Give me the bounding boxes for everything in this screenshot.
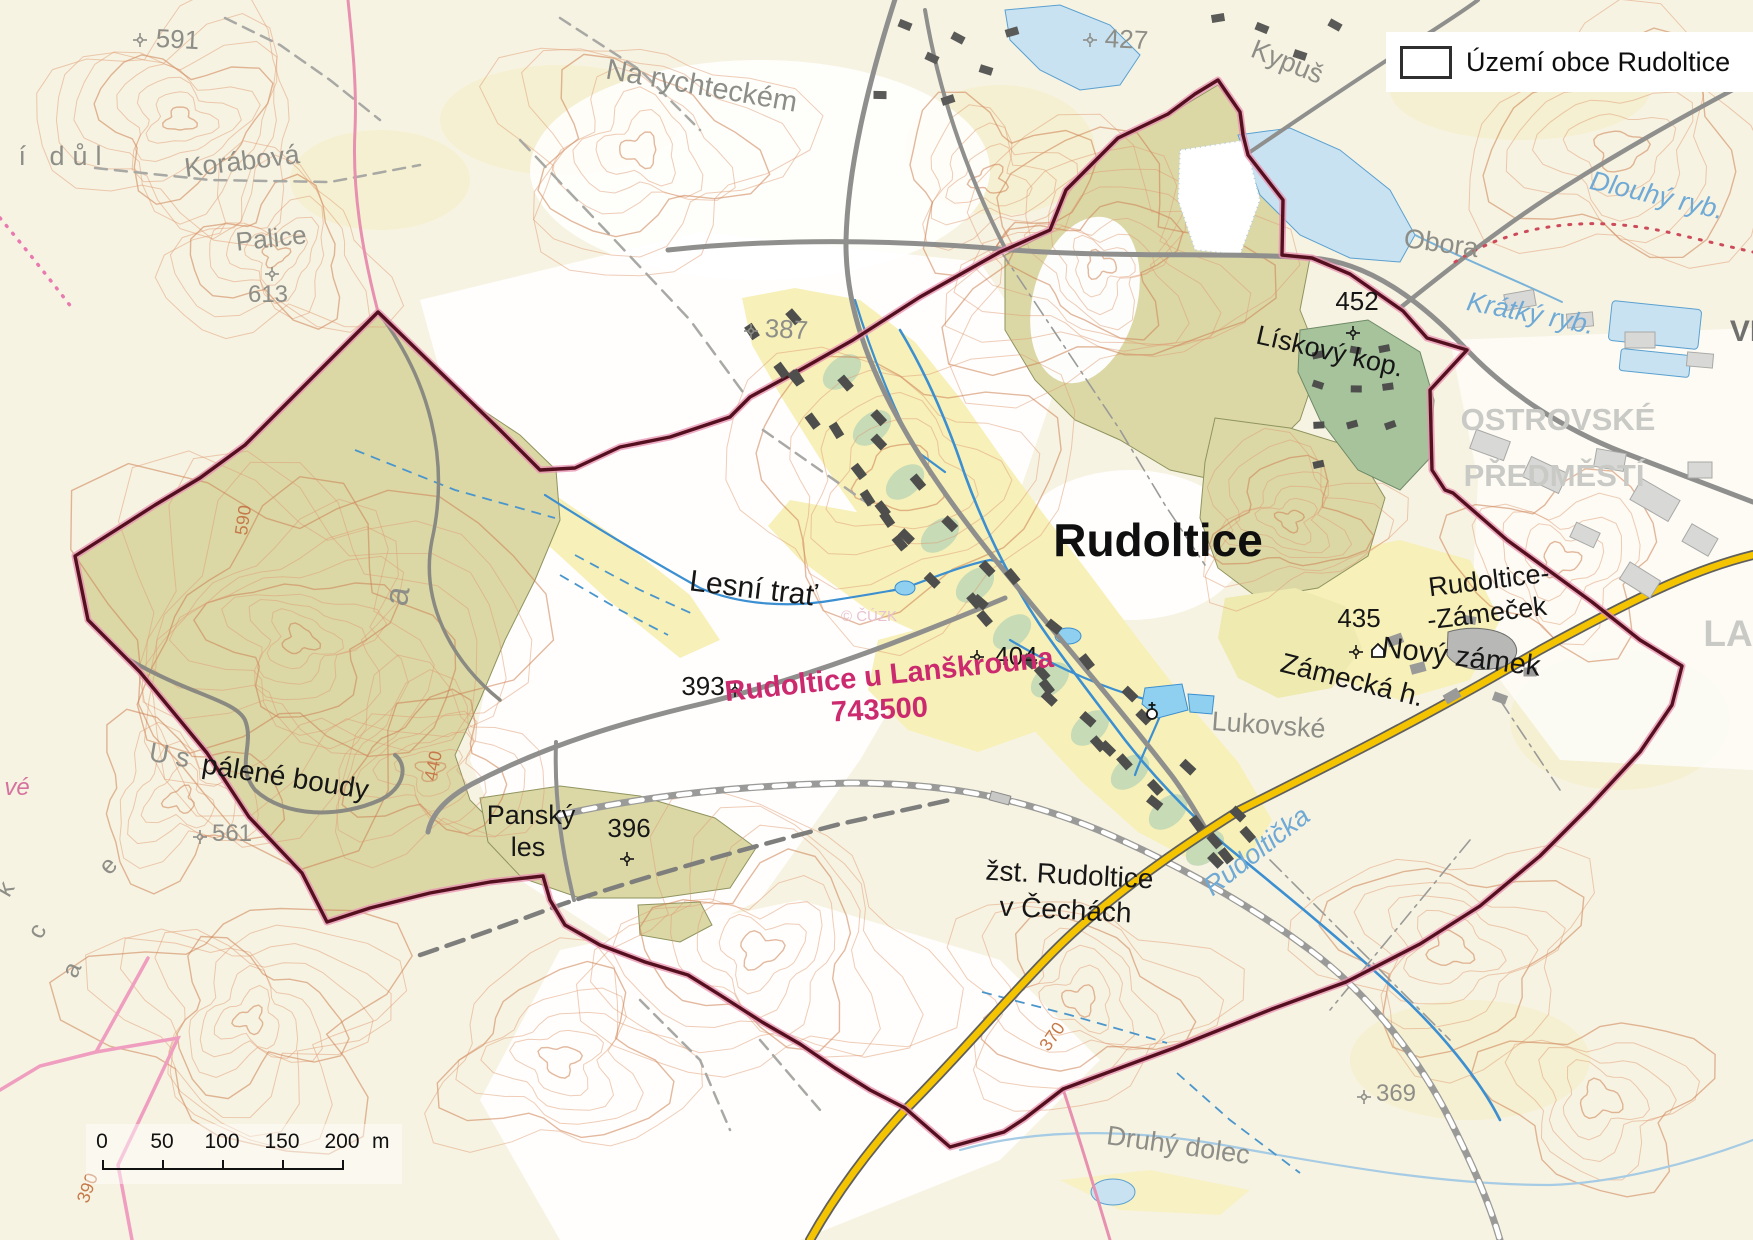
map-label-ve: vé <box>4 774 29 801</box>
church-icon <box>1147 702 1157 719</box>
scale-tick-label: 50 <box>150 1130 173 1154</box>
map-label-les: les <box>511 832 546 862</box>
map-label-396: 396 <box>607 813 650 843</box>
map-label-427: 427 <box>1104 23 1149 55</box>
map-label-435: 435 <box>1337 603 1380 633</box>
topographic-map-rudoltice: Na rychteckémKorábováPalice613591í důl42… <box>0 0 1753 1240</box>
map-label-vi: VI <box>1730 315 1753 348</box>
map-label-387: 387 <box>764 313 809 345</box>
map-label-pansky: Panský <box>487 800 576 830</box>
map-label-452: 452 <box>1335 286 1378 316</box>
legend-label: Území obce Rudoltice <box>1466 47 1730 78</box>
scale-bar: 0 50 100 150 200 m <box>86 1124 402 1184</box>
map-canvas: Na rychteckémKorábováPalice613591í důl42… <box>0 0 1753 1240</box>
map-label-561: 561 <box>212 820 252 847</box>
municipality-boundary-swatch <box>1400 46 1452 79</box>
scale-tick-label: 0 <box>96 1130 108 1154</box>
map-label-590: 590 <box>231 504 255 537</box>
map-legend: Území obce Rudoltice <box>1386 32 1753 92</box>
map-label-369: 369 <box>1376 1080 1416 1107</box>
map-label-rudoltice: Rudoltice <box>1053 514 1263 566</box>
map-label-613: 613 <box>248 281 288 308</box>
scale-tick-label: 100 <box>204 1130 239 1154</box>
scale-tick-label: 200 <box>324 1130 359 1154</box>
map-label-i-dul: í důl <box>18 141 109 171</box>
map-label-cuzk: © ČÚZK <box>841 608 897 625</box>
map-label-ostrovske: OSTROVSKÉ <box>1461 402 1656 437</box>
map-label-393: 393 <box>681 671 724 701</box>
scale-tick-label: 150 <box>264 1130 299 1154</box>
map-label-predmesti: PŘEDMĚSTÍ <box>1464 457 1646 493</box>
map-label-743500: 743500 <box>830 692 928 729</box>
map-label-591: 591 <box>155 23 200 55</box>
map-label-la: LA <box>1703 613 1752 654</box>
scale-unit: m <box>372 1130 390 1154</box>
